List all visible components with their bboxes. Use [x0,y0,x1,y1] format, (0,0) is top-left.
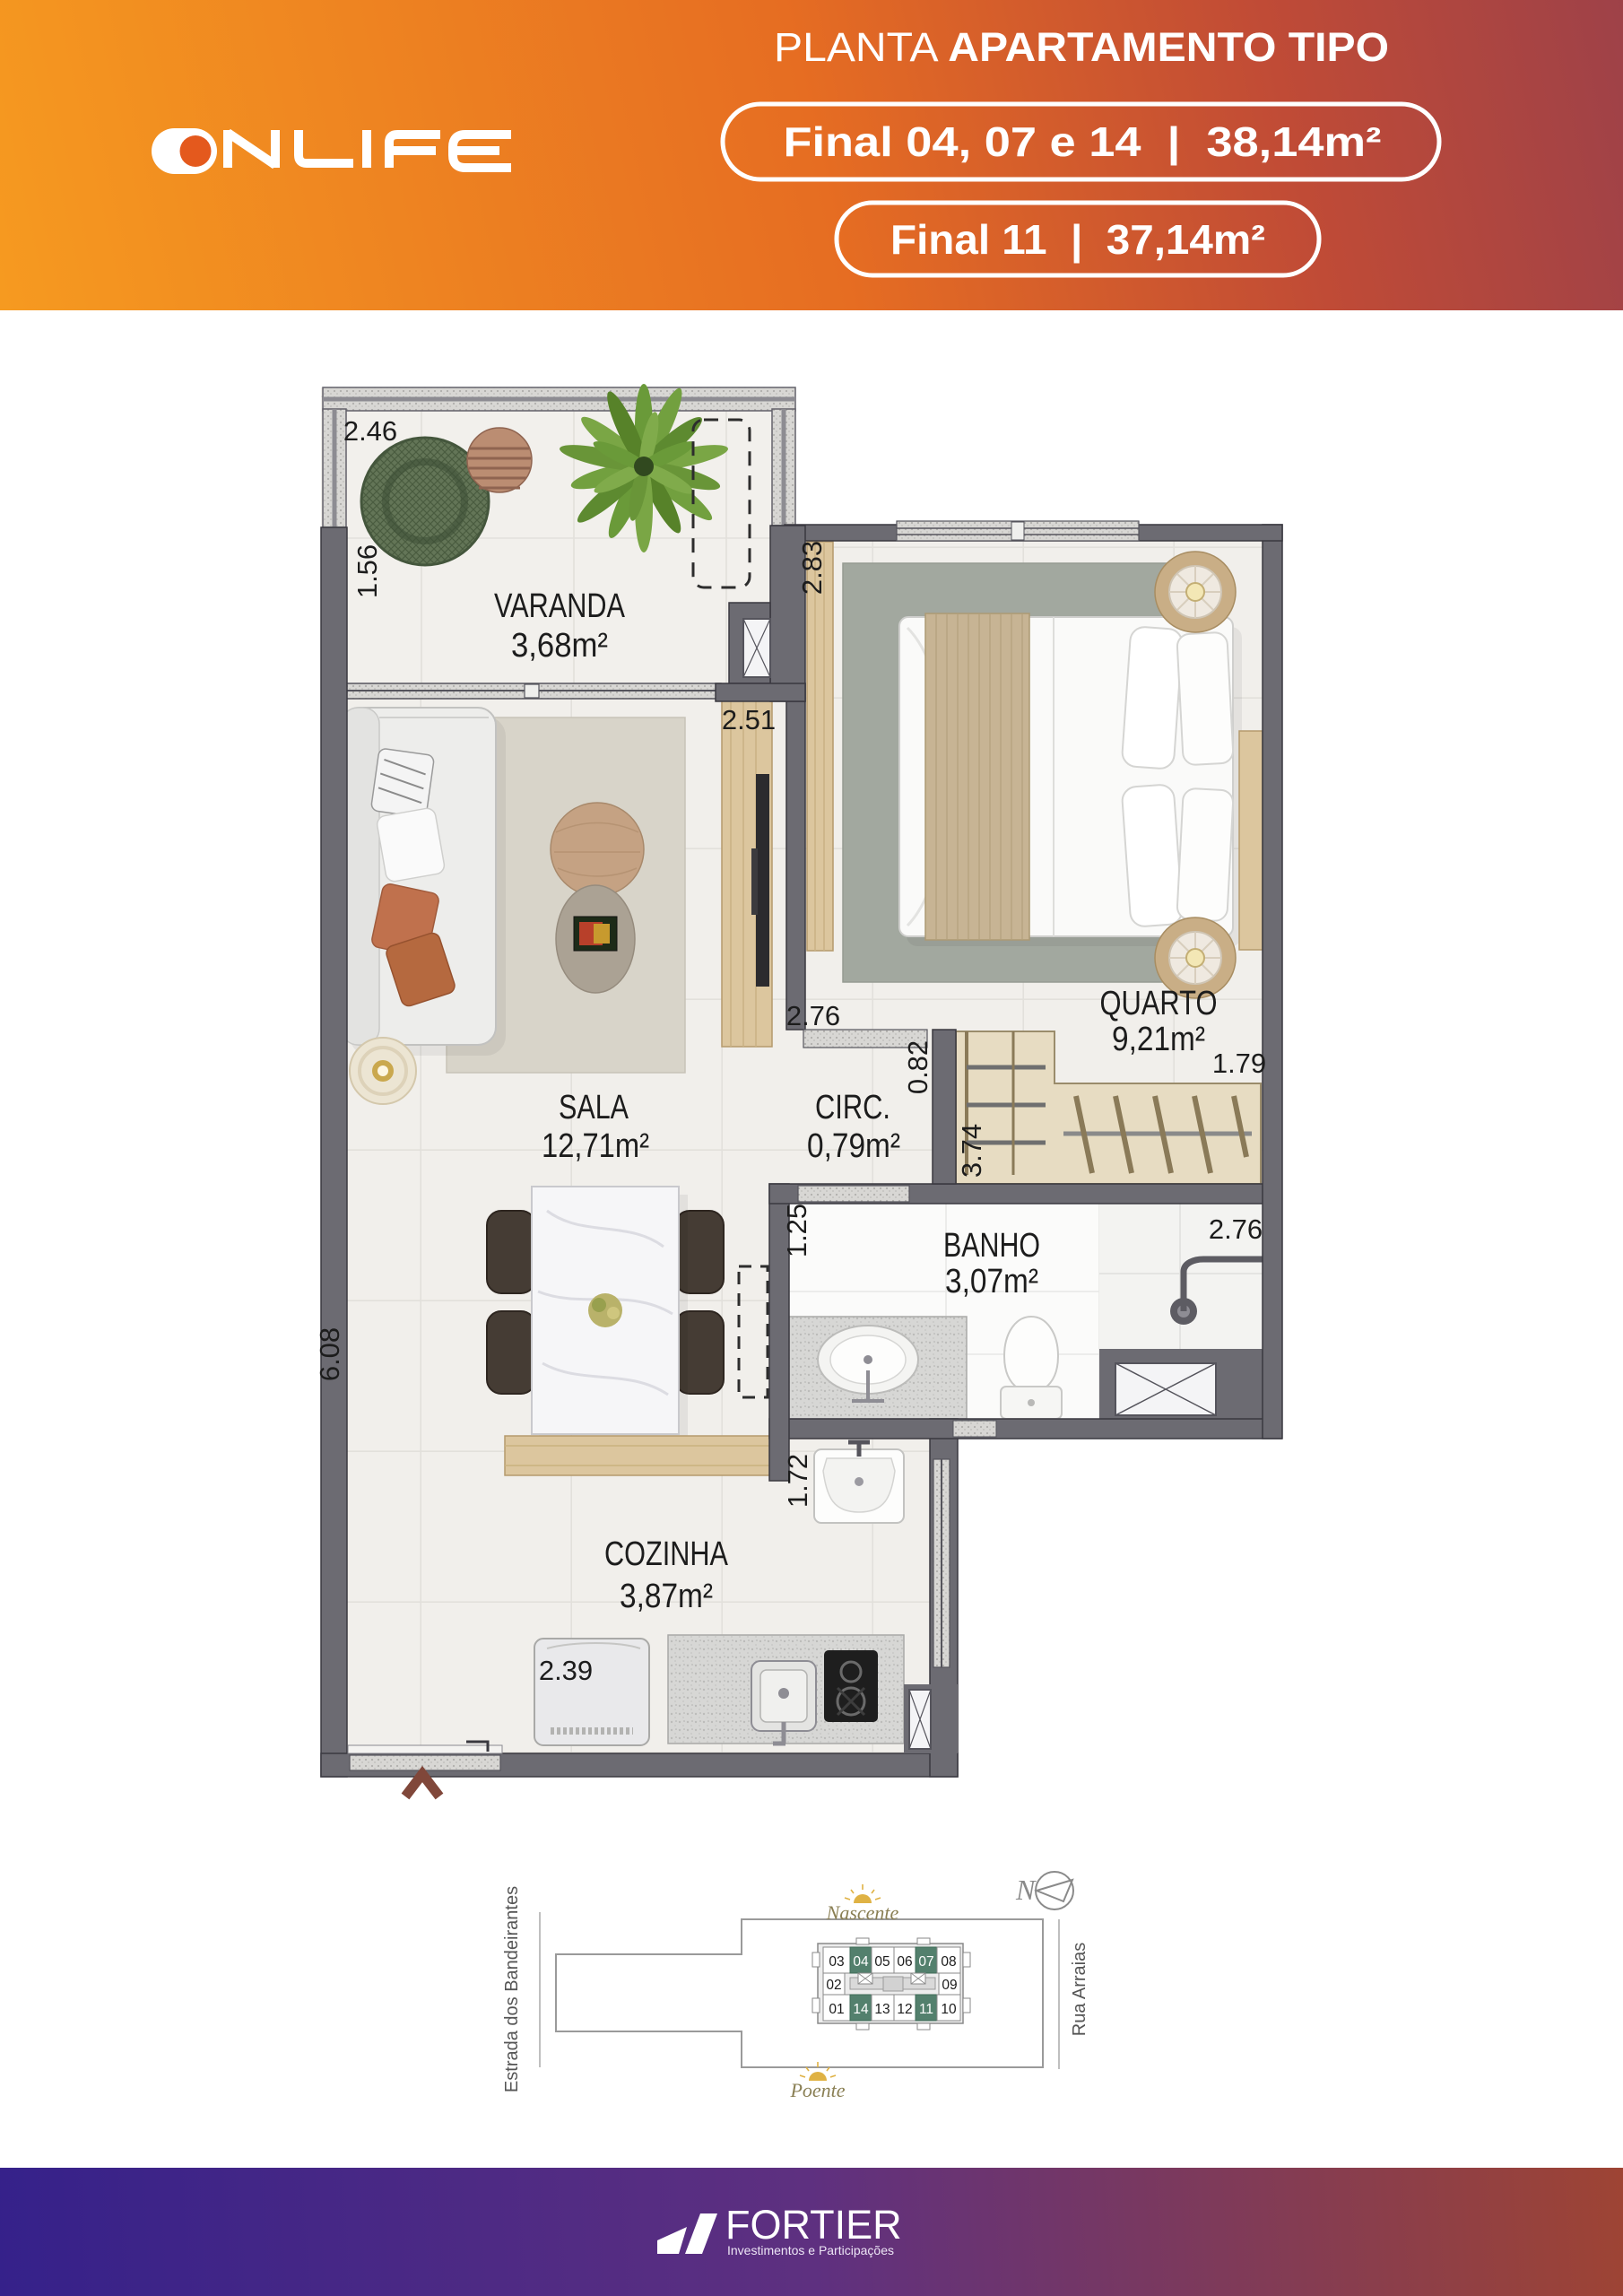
svg-text:Poente: Poente [789,2079,845,2101]
svg-text:SALA: SALA [559,1089,629,1126]
svg-text:12,71m²: 12,71m² [542,1127,649,1165]
svg-text:2.51: 2.51 [722,704,776,735]
svg-text:CIRC.: CIRC. [815,1089,890,1126]
svg-text:Estrada dos Bandeirantes: Estrada dos Bandeirantes [502,1886,522,2092]
svg-text:06: 06 [897,1954,912,1970]
svg-text:3,07m²: 3,07m² [945,1263,1038,1300]
svg-text:1.72: 1.72 [782,1454,813,1508]
svg-text:04: 04 [853,1954,869,1970]
svg-text:1.56: 1.56 [352,544,383,598]
svg-text:1.79: 1.79 [1212,1048,1266,1079]
svg-text:Final 11 | 37,14m²: Final 11 | 37,14m² [890,216,1265,263]
svg-text:FORTIER: FORTIER [725,2202,902,2248]
svg-text:02: 02 [826,1978,841,1993]
svg-text:VARANDA: VARANDA [494,587,626,625]
svg-text:2.46: 2.46 [343,415,397,447]
svg-text:05: 05 [874,1954,890,1970]
svg-text:2.83: 2.83 [796,541,828,595]
svg-text:07: 07 [918,1954,933,1970]
svg-text:01: 01 [829,2002,844,2017]
svg-text:12: 12 [897,2002,912,2017]
svg-text:3,68m²: 3,68m² [511,627,608,665]
svg-text:1.25: 1.25 [781,1204,812,1257]
svg-text:9,21m²: 9,21m² [1112,1021,1205,1058]
svg-text:11: 11 [919,2002,933,2017]
svg-text:09: 09 [942,1978,957,1993]
svg-text:COZINHA: COZINHA [604,1535,729,1573]
svg-text:2.76: 2.76 [1209,1213,1263,1245]
svg-text:08: 08 [941,1954,956,1970]
svg-text:10: 10 [941,2002,957,2017]
svg-text:Rua Arraias: Rua Arraias [1070,1943,1089,2037]
svg-text:03: 03 [829,1954,844,1970]
svg-text:N: N [1015,1874,1037,1906]
svg-text:14: 14 [853,2002,869,2017]
svg-text:BANHO: BANHO [943,1227,1040,1265]
svg-text:13: 13 [874,2002,890,2017]
svg-text:0,79m²: 0,79m² [807,1127,900,1165]
svg-text:Investimentos e Participações: Investimentos e Participações [727,2243,894,2257]
svg-text:Nascente: Nascente [826,1901,899,1924]
svg-text:6.08: 6.08 [314,1327,345,1381]
svg-text:0.82: 0.82 [902,1040,933,1094]
svg-text:Final 04, 07 e 14 | 38,14m²: Final 04, 07 e 14 | 38,14m² [784,118,1382,165]
svg-text:3.74: 3.74 [956,1124,987,1178]
svg-text:QUARTO: QUARTO [1100,985,1218,1022]
svg-text:3,87m²: 3,87m² [620,1578,713,1615]
svg-text:2.76: 2.76 [786,1000,840,1031]
svg-text:PLANTA APARTAMENTO TIPO: PLANTA APARTAMENTO TIPO [774,24,1389,70]
svg-text:2.39: 2.39 [539,1655,593,1686]
